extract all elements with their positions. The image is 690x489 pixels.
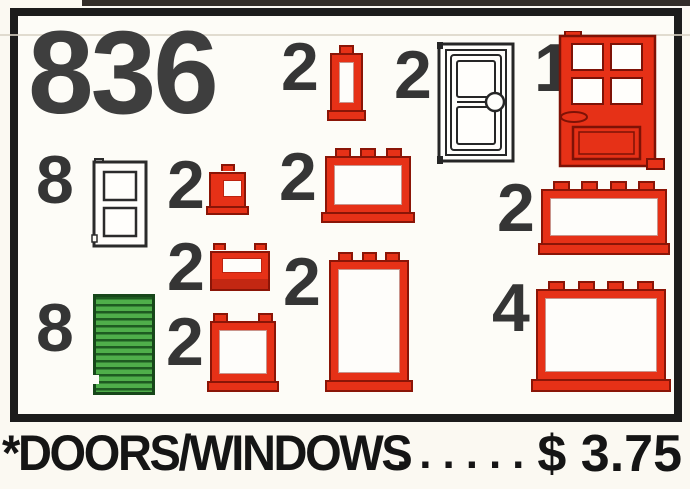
piece-window-1x1x1-red xyxy=(209,164,246,215)
product-title: *DOORS/WINDOWS xyxy=(2,428,410,478)
stud-row xyxy=(330,45,363,53)
piece-window-1x4x3-red xyxy=(536,281,666,392)
qty-window-1x1x2: 2 xyxy=(281,33,317,101)
doorknob-icon xyxy=(486,93,504,111)
piece-window-1x3x2-red xyxy=(325,148,411,223)
piece-window-1x2x3-red xyxy=(329,252,409,392)
piece-door-white-outline xyxy=(437,42,517,165)
scan-edge-artifact xyxy=(82,0,690,6)
qty-window-1x1x1: 2 xyxy=(167,151,203,219)
stud-row xyxy=(209,164,246,172)
qty-window-slit: 2 xyxy=(167,233,203,301)
catalog-card: 836 2 2 1 8 2 xyxy=(0,0,690,489)
qty-window-1x4x2: 2 xyxy=(497,174,533,242)
price-group: ...... $ 3.75 xyxy=(396,428,682,480)
qty-shutter-white: 8 xyxy=(36,146,72,214)
stud-row xyxy=(329,252,409,260)
door-handle-icon xyxy=(561,112,587,122)
piece-window-1x1x2-red xyxy=(330,45,363,121)
stud-row xyxy=(325,148,411,156)
qty-door-white: 2 xyxy=(394,41,430,109)
stud-row xyxy=(541,181,667,189)
piece-window-1x2x2-red xyxy=(210,313,276,392)
shutter-notch xyxy=(93,375,99,384)
piece-shutter-green xyxy=(93,294,155,395)
piece-shutter-white-outline xyxy=(91,158,151,250)
stud-row xyxy=(210,243,270,251)
set-number: 836 xyxy=(28,14,216,132)
leader-dots: ...... xyxy=(396,429,535,480)
piece-window-slit-1x2x1-red xyxy=(210,243,270,291)
price-value: $ 3.75 xyxy=(537,428,682,480)
qty-window-1x4x3: 4 xyxy=(492,274,528,342)
qty-window-1x2x2: 2 xyxy=(166,308,202,376)
stud-row xyxy=(210,313,276,321)
stud-row xyxy=(536,281,666,289)
qty-window-1x2x3: 2 xyxy=(283,248,319,316)
qty-shutter-green: 8 xyxy=(36,294,72,362)
piece-window-1x4x2-red xyxy=(541,181,667,255)
qty-window-1x3x2: 2 xyxy=(279,143,315,211)
piece-door-4-pane-red xyxy=(557,31,667,174)
